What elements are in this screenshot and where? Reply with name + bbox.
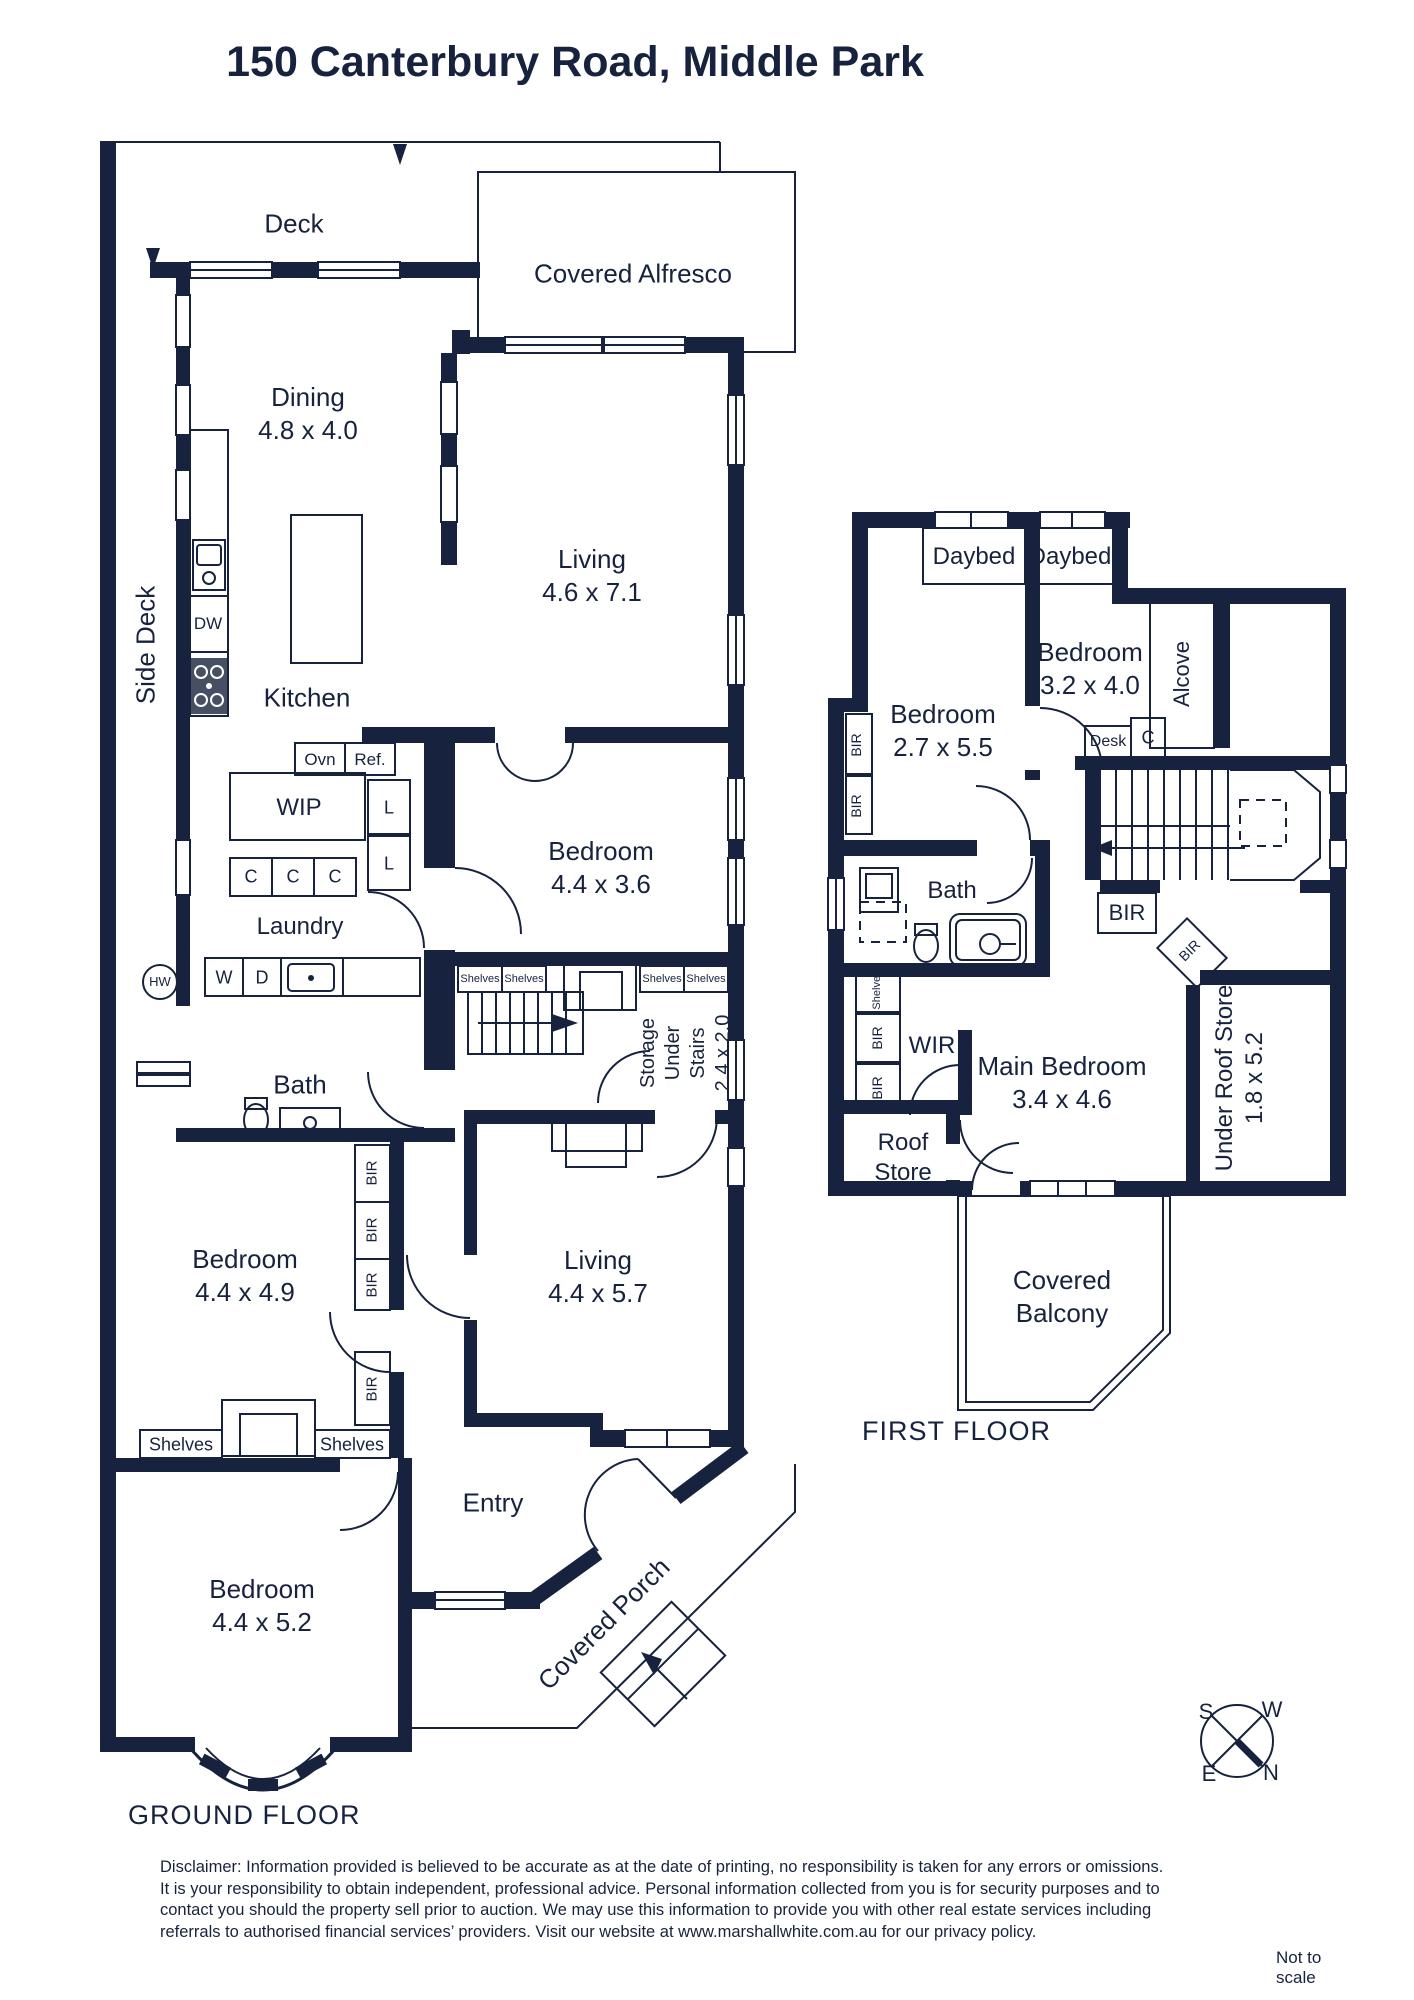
kitchen-bench: [190, 430, 395, 775]
shelves-label: Shelves: [642, 973, 681, 987]
room-label-kitchen: Kitchen: [264, 681, 351, 714]
room-label-alfresco: Covered Alfresco: [534, 257, 732, 290]
shelves-label: Shelves: [504, 973, 543, 987]
linen-label: L: [384, 797, 394, 820]
bir-label: BIR: [848, 733, 866, 756]
dishwasher-label: DW: [194, 613, 222, 635]
room-label-bed1: Bedroom4.4 x 3.6: [548, 835, 654, 901]
fireplace-icon: [222, 1400, 315, 1456]
floorplan-page: 150 Canterbury Road, Middle Park Deck Co…: [0, 0, 1414, 2000]
bathtub-icon: [950, 914, 1026, 966]
hot-water-label: HW: [149, 974, 171, 991]
linen-label: L: [384, 853, 394, 876]
fridge-label: Ref.: [354, 749, 385, 771]
oven-label: Ovn: [304, 749, 335, 771]
room-label-storage: Storage Under Stairs 2.4 x 2.0: [636, 1015, 736, 1092]
daybed-label: Daybed: [1029, 542, 1112, 572]
cupboard-label: C: [287, 866, 300, 889]
room-label-ff-bath: Bath: [927, 876, 976, 906]
room-label-dining: Dining4.8 x 4.0: [258, 381, 358, 447]
bay-window: [190, 1748, 336, 1791]
bir-label: BIR: [1109, 899, 1146, 927]
room-label-ff-bed2: Bedroom3.2 x 4.0: [1037, 636, 1143, 702]
first-staircase: [1085, 770, 1320, 880]
room-label-bath: Bath: [273, 1068, 327, 1101]
bir-label: BIR: [848, 794, 866, 817]
desk-label: Desk: [1090, 732, 1126, 752]
deck-outline: [100, 142, 720, 269]
disclaimer-text: Disclaimer: Information provided is beli…: [160, 1857, 1168, 1943]
room-label-side-deck: Side Deck: [129, 586, 162, 705]
room-label-alcove: Alcove: [1168, 641, 1196, 707]
ground-floor-caption: GROUND FLOOR: [128, 1800, 361, 1831]
room-label-balcony: CoveredBalcony: [1013, 1264, 1111, 1330]
room-label-deck: Deck: [264, 207, 323, 240]
room-label-ff-bed1: Bedroom2.7 x 5.5: [890, 698, 996, 764]
room-label-bed2: Bedroom4.4 x 4.9: [192, 1243, 298, 1309]
stair-void: [1240, 800, 1286, 846]
shelves-label: Shelves: [686, 973, 725, 987]
room-label-roof-store: Roof Store: [874, 1128, 931, 1188]
dryer-label: D: [256, 967, 269, 990]
compass-north-label: N: [1263, 1759, 1279, 1787]
compass-east-label: E: [1202, 1760, 1217, 1788]
cupboard-label: C: [1142, 727, 1155, 750]
room-label-living2: Living4.4 x 5.7: [548, 1244, 648, 1310]
kitchen-island: [291, 515, 362, 663]
room-label-entry: Entry: [463, 1486, 524, 1519]
shelves-label: Shelves: [149, 1434, 213, 1457]
room-label-laundry: Laundry: [257, 912, 344, 942]
bir-label: BIR: [869, 1026, 887, 1049]
room-label-main-bed: Main Bedroom3.4 x 4.6: [977, 1050, 1146, 1116]
shelves-label: Shelves: [320, 1434, 384, 1457]
room-label-wir: WIR: [909, 1031, 956, 1061]
room-label-wip: WIP: [276, 793, 321, 823]
washer-label: W: [216, 967, 233, 990]
room-label-under-roof-store: Under Roof Store 1.8 x 5.2: [1210, 985, 1270, 1172]
compass-west-label: W: [1262, 1696, 1283, 1724]
bir-label: BIR: [362, 1217, 381, 1242]
first-floor-caption: FIRST FLOOR: [862, 1416, 1051, 1447]
scale-note: Not to scale: [1276, 1948, 1345, 1988]
compass-south-label: S: [1199, 1698, 1214, 1726]
cupboard-label: C: [329, 866, 342, 889]
ground-walls: [100, 142, 744, 1752]
cupboard-label: C: [245, 866, 258, 889]
shelves-label: Shelves: [871, 970, 885, 1009]
ground-floor-plan: [100, 142, 795, 1791]
room-label-living1: Living4.6 x 7.1: [542, 543, 642, 609]
bir-label: BIR: [362, 1160, 381, 1185]
deck-arrow-icon: [393, 144, 407, 165]
room-label-bed3: Bedroom4.4 x 5.2: [209, 1573, 315, 1639]
shower-icon: [860, 902, 906, 942]
bir-label: BIR: [869, 1076, 887, 1099]
shelves-label: Shelves: [460, 973, 499, 987]
bir-label: BIR: [362, 1376, 381, 1401]
page-title: 150 Canterbury Road, Middle Park: [226, 38, 924, 87]
daybed-label: Daybed: [933, 542, 1016, 572]
bir-label: BIR: [362, 1272, 381, 1297]
